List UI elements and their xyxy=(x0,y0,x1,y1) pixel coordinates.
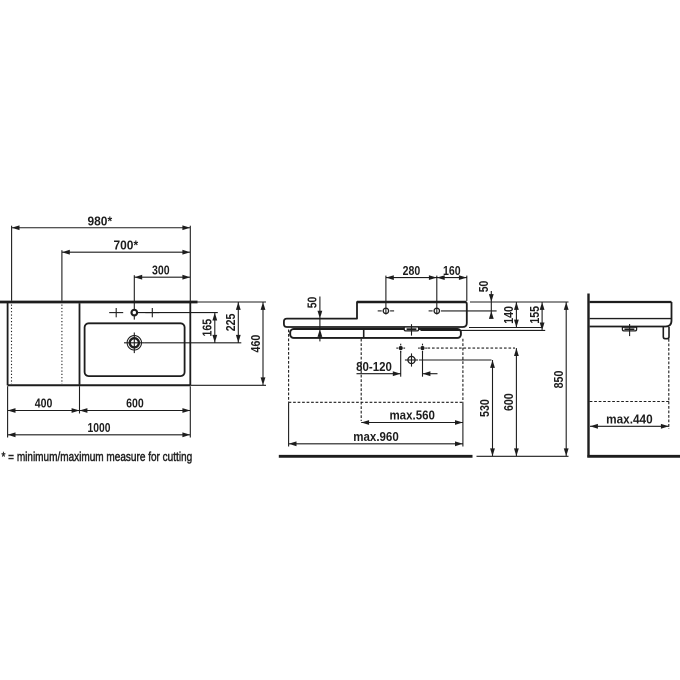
svg-text:530: 530 xyxy=(477,399,492,417)
svg-text:980*: 980* xyxy=(88,213,113,228)
svg-text:700*: 700* xyxy=(114,238,139,253)
svg-text:50: 50 xyxy=(305,297,320,309)
svg-text:max.960: max.960 xyxy=(353,429,399,444)
svg-text:160: 160 xyxy=(443,263,461,278)
svg-text:* = minimum/maximum measure fo: * = minimum/maximum measure for cutting xyxy=(2,449,193,464)
svg-text:155: 155 xyxy=(527,306,542,324)
svg-text:50: 50 xyxy=(476,281,491,293)
svg-text:400: 400 xyxy=(35,396,53,411)
svg-text:225: 225 xyxy=(223,314,238,332)
svg-text:600: 600 xyxy=(126,396,144,411)
svg-text:140: 140 xyxy=(501,306,516,324)
svg-text:165: 165 xyxy=(200,319,215,337)
svg-text:460: 460 xyxy=(248,335,263,353)
svg-text:600: 600 xyxy=(501,393,516,411)
svg-text:280: 280 xyxy=(403,263,421,278)
svg-text:300: 300 xyxy=(152,262,170,277)
svg-text:max.440: max.440 xyxy=(606,412,653,427)
svg-text:max.560: max.560 xyxy=(389,408,435,423)
svg-text:1000: 1000 xyxy=(88,420,111,435)
svg-text:850: 850 xyxy=(551,371,566,389)
